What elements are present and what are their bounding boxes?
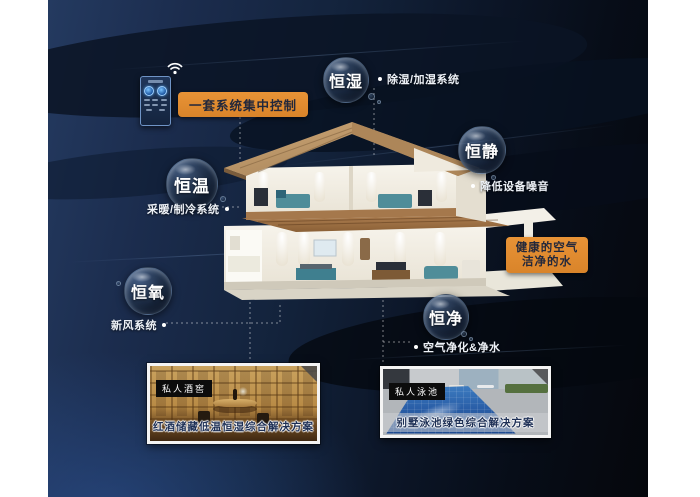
device-knobs <box>143 86 168 96</box>
kitchen-fridge <box>230 236 240 250</box>
mini-bubble <box>461 331 467 337</box>
wine-bottle <box>233 389 237 400</box>
infographic-stage: 一套系统集中控制 健康的空气 洁净的水 恒湿 恒静 恒温 恒氧 恒净 除湿/加湿… <box>0 0 700 497</box>
wine-cellar-caption: 红酒储藏低温恒湿综合解决方案 <box>150 419 317 434</box>
picture-window <box>314 240 336 256</box>
highlight-line2: 洁净的水 <box>510 255 584 269</box>
note-text: 除湿/加湿系统 <box>387 71 460 87</box>
flower-vase <box>238 387 248 396</box>
healthy-air-water-highlight: 健康的空气 洁净的水 <box>506 237 588 273</box>
upper-tv-2 <box>418 190 432 206</box>
tv-screen <box>376 262 406 270</box>
bubble-heng-shi: 恒湿 <box>323 57 369 103</box>
dining-table <box>296 268 336 280</box>
note-purification: 空气净化&净水 <box>414 339 500 355</box>
highlight-line1: 健康的空气 <box>510 241 584 255</box>
tv-cabinet <box>372 270 410 280</box>
device-screen-header <box>148 80 163 83</box>
upper-tv <box>254 188 268 206</box>
armchair <box>462 260 480 280</box>
note-dehumidify: 除湿/加湿系统 <box>378 71 460 87</box>
note-text: 新风系统 <box>111 317 157 333</box>
bed-right <box>378 194 412 208</box>
device-readout-row <box>143 104 168 106</box>
bubble-heng-jing: 恒静 <box>458 126 506 174</box>
bullet-dot-icon <box>225 207 229 211</box>
central-control-highlight: 一套系统集中控制 <box>178 92 308 117</box>
mini-bubble <box>116 281 121 286</box>
bullet-dot-icon <box>162 323 166 327</box>
note-fresh-air: 新风系统 <box>111 317 166 333</box>
corner-ribbon <box>301 366 317 382</box>
knob-icon <box>144 86 154 96</box>
note-noise: 降低设备噪音 <box>471 178 549 194</box>
mini-bubble <box>368 93 375 100</box>
pool-card: 私人泳池 别墅泳池绿色综合解决方案 <box>380 366 551 438</box>
wall-clock-cabinet <box>360 238 370 260</box>
knob-icon <box>157 86 167 96</box>
note-text: 降低设备噪音 <box>480 178 549 194</box>
dark-panel-background: 一套系统集中控制 健康的空气 洁净的水 恒湿 恒静 恒温 恒氧 恒净 除湿/加湿… <box>48 0 648 497</box>
bullet-dot-icon <box>471 184 475 188</box>
room-divider-wall <box>349 166 353 216</box>
tasting-table <box>213 399 256 407</box>
note-text: 空气净化&净水 <box>423 339 500 355</box>
pool-caption: 别墅泳池绿色综合解决方案 <box>383 413 548 432</box>
note-heating-cooling: 采暖/制冷系统 <box>147 201 229 217</box>
wifi-icon <box>167 62 183 75</box>
bullet-dot-icon <box>378 77 382 81</box>
pool-handrail <box>477 385 494 388</box>
note-text: 采暖/制冷系统 <box>147 201 220 217</box>
bubble-heng-yang: 恒氧 <box>124 267 172 315</box>
sofa <box>424 266 458 280</box>
mini-bubble <box>377 100 381 104</box>
wine-cellar-tag: 私人酒窖 <box>156 380 212 397</box>
pool-tag: 私人泳池 <box>389 383 445 400</box>
smart-control-panel <box>140 76 171 126</box>
corner-ribbon <box>532 369 548 385</box>
bed-left-headboard <box>276 190 286 198</box>
bullet-dot-icon <box>414 345 418 349</box>
wine-cellar-card: 私人酒窖 红酒储藏低温恒湿综合解决方案 <box>147 363 320 444</box>
kitchen-cabinets <box>228 256 260 272</box>
device-readout-row <box>143 109 168 111</box>
dining-chairs <box>300 264 332 269</box>
device-readout-row <box>143 99 168 101</box>
